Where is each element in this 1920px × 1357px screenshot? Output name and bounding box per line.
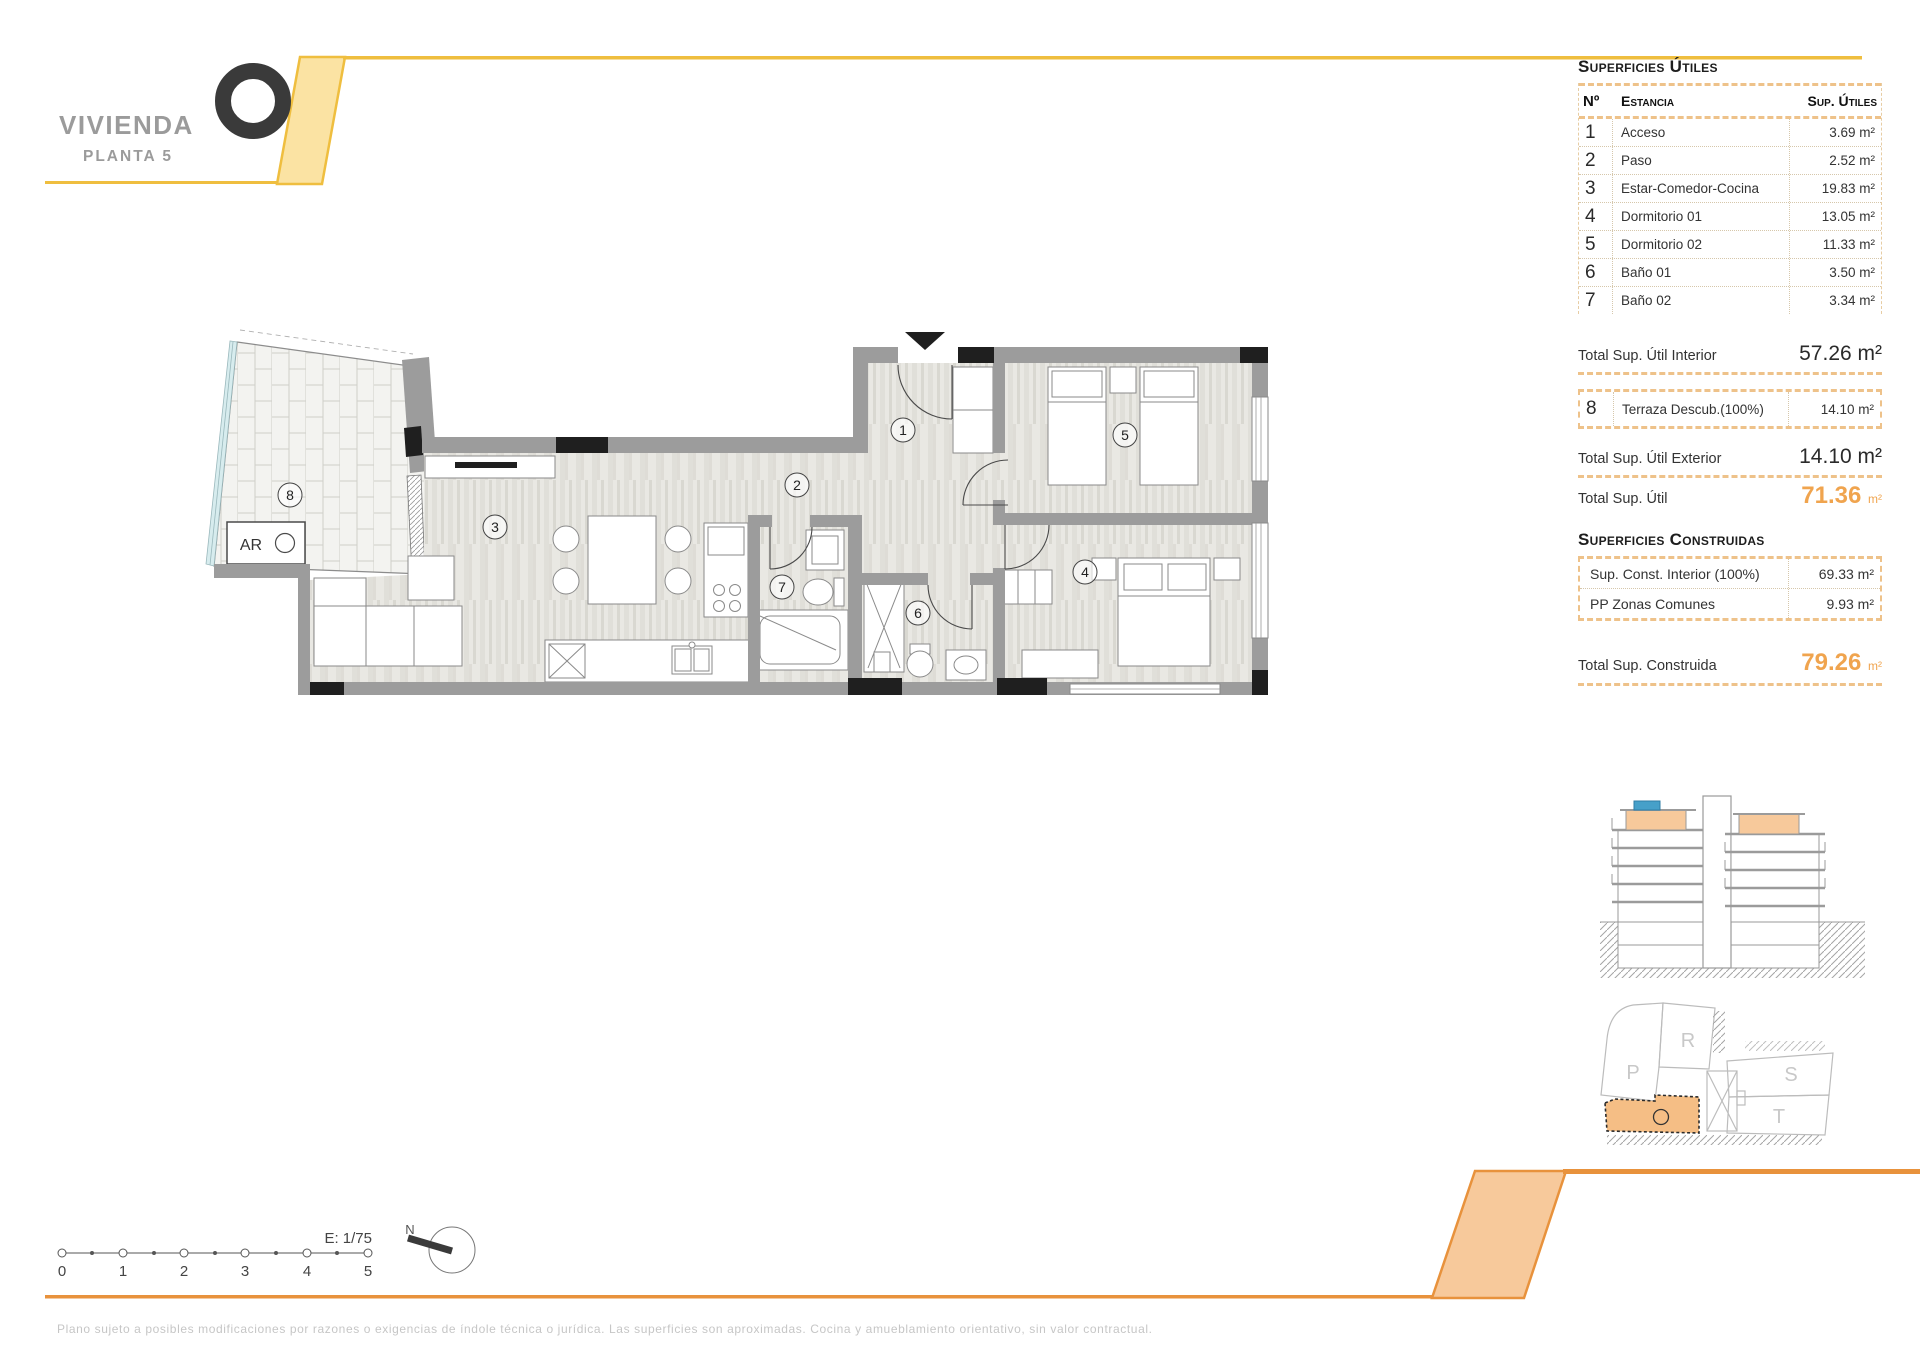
row-name: Sup. Const. Interior (100%) [1580,566,1788,582]
room-label-8: 8 [278,483,302,507]
total-exterior: Total Sup. Útil Exterior 14.10 m² [1578,443,1882,478]
bottom-band-parallelogram [1432,1171,1566,1298]
site-hatch-top [1745,1041,1825,1051]
highlighted-floor [1626,810,1686,830]
ar-unit-icon [276,534,295,553]
bottom-band-right-line [1563,1169,1920,1174]
north-label: N [405,1222,414,1237]
built-areas-title: Superficies Construidas [1578,530,1882,550]
footer-disclaimer: Plano sujeto a posibles modificaciones p… [57,1322,1153,1336]
kitchen-counter [545,640,750,682]
table-row: 8 Terraza Descub.(100%) 14.10 m² [1580,392,1880,426]
table-row: PP Zonas Comunes9.93 m² [1580,589,1880,618]
scale-tick: 0 [58,1263,66,1280]
row-value: 11.33 m² [1789,231,1881,258]
room-label-6: 6 [906,601,930,625]
plan-sheet: AR [0,0,1920,1357]
nightstand [1214,558,1240,580]
useful-areas-title: Superficies Útiles [1578,57,1882,77]
entry-closet [953,367,993,453]
total-interior-label: Total Sup. Útil Interior [1578,348,1717,364]
top-band-parallelogram [277,57,345,184]
table-header: Nº Estancia Sup. Útiles [1579,83,1881,119]
site-hatch-gap [1713,1011,1725,1053]
row-num: 3 [1579,175,1613,202]
row-name: Baño 01 [1613,265,1789,280]
scale-bar: E: 1/75 0 1 2 3 4 5 [58,1230,372,1280]
useful-areas-table: Nº Estancia Sup. Útiles 1Acceso3.69 m² 2… [1578,83,1882,314]
logo-title: VIVIENDA [59,110,194,141]
bottom-band-left-line [45,1295,1434,1299]
svg-text:6: 6 [914,605,922,621]
total-util-value: 71.36 m² [1801,482,1882,510]
total-util-label: Total Sup. Útil [1578,491,1667,507]
svg-text:1: 1 [899,422,907,438]
block-p [1601,1003,1663,1101]
row-name: PP Zonas Comunes [1580,596,1788,612]
row-value: 19.83 m² [1789,175,1881,202]
row-num: 5 [1579,231,1613,258]
svg-text:2: 2 [793,477,801,493]
site-key-plan: R P S T [1601,1003,1833,1145]
svg-text:5: 5 [1121,427,1129,443]
table-row: 3Estar-Comedor-Cocina19.83 m² [1579,175,1881,203]
window [1252,523,1268,638]
core-shaft [1703,796,1731,968]
row-name: Dormitorio 01 [1613,209,1789,224]
svg-text:7: 7 [778,579,786,595]
row-value: 3.34 m² [1789,287,1881,314]
total-util-unit: m² [1868,492,1882,506]
room-label-3: 3 [483,515,507,539]
building-section [1600,796,1865,978]
room-label-5: 5 [1113,423,1137,447]
row-value: 69.33 m² [1788,559,1880,588]
total-built-label: Total Sup. Construida [1578,658,1717,674]
scale-tick: 3 [241,1263,249,1280]
room-label-2: 2 [785,473,809,497]
scale-tick: 1 [119,1263,127,1280]
block-t-label: T [1773,1106,1785,1128]
table-row: 7Baño 023.34 m² [1579,287,1881,314]
table-row: Sup. Const. Interior (100%)69.33 m² [1580,559,1880,589]
coffee-table [408,556,454,600]
row-name: Estar-Comedor-Cocina [1613,181,1789,196]
row-name: Terraza Descub.(100%) [1614,402,1788,417]
total-built-unit: m² [1868,659,1882,673]
scale-label: E: 1/75 [324,1230,372,1247]
scale-tick: 5 [364,1263,372,1280]
room-label-4: 4 [1073,560,1097,584]
row-num: 8 [1580,392,1614,426]
total-built-number: 79.26 [1801,649,1861,676]
total-util: Total Sup. Útil 71.36 m² [1578,478,1882,516]
ar-unit-label: AR [240,537,262,554]
tv [455,462,517,468]
pool-icon [1634,801,1660,810]
svg-text:8: 8 [286,487,294,503]
built-areas-table: Sup. Const. Interior (100%)69.33 m² PP Z… [1578,556,1882,621]
row-name: Acceso [1613,125,1789,140]
svg-text:3: 3 [491,519,499,535]
toilet-icon [803,579,833,605]
kitchen-tall-units [704,523,748,617]
row-value: 2.52 m² [1789,147,1881,174]
row-num: 4 [1579,203,1613,230]
floor-plan: AR [206,330,1268,695]
col-value-header: Sup. Útiles [1789,93,1881,109]
window [1252,397,1268,481]
row-num: 2 [1579,147,1613,174]
entrance-arrow-icon [905,332,945,350]
table-row: 1Acceso3.69 m² [1579,119,1881,147]
nightstand [1110,367,1136,393]
terrace-column [404,426,423,457]
total-exterior-value: 14.10 m² [1799,445,1882,469]
terrace-bottom-wall [214,564,310,578]
row-num: 7 [1579,287,1613,314]
room-label-7: 7 [770,575,794,599]
scale-tick: 4 [303,1263,311,1280]
left-tower [1612,801,1708,922]
brand-ring-icon [223,71,283,131]
table-row: 2Paso2.52 m² [1579,147,1881,175]
terrace-row-box: 8 Terraza Descub.(100%) 14.10 m² [1578,389,1882,429]
row-value: 13.05 m² [1789,203,1881,230]
block-s-label: S [1784,1064,1797,1086]
wardrobe [1002,570,1052,604]
room-label-1: 1 [891,418,915,442]
row-num: 6 [1579,259,1613,286]
row-name: Dormitorio 02 [1613,237,1789,252]
block-p-label: P [1626,1062,1639,1084]
row-num: 1 [1579,119,1613,146]
table-row: 4Dormitorio 0113.05 m² [1579,203,1881,231]
terrace: AR [206,330,437,578]
row-name: Baño 02 [1613,293,1789,308]
total-interior-value: 57.26 m² [1799,342,1882,366]
total-util-number: 71.36 [1801,482,1861,509]
total-built-value: 79.26 m² [1801,649,1882,677]
logo-subtitle: PLANTA 5 [83,148,173,166]
total-exterior-label: Total Sup. Útil Exterior [1578,451,1721,467]
right-tower [1725,814,1825,922]
row-value: 14.10 m² [1788,392,1880,426]
row-value: 9.93 m² [1788,589,1880,618]
highlighted-floor [1739,814,1799,834]
desk [1022,650,1098,678]
row-value: 3.69 m² [1789,119,1881,146]
col-name-header: Estancia [1613,93,1789,109]
areas-panel: Superficies Útiles Nº Estancia Sup. Útil… [1578,57,1882,686]
site-ground-hatch [1607,1135,1822,1145]
row-name: Paso [1613,153,1789,168]
total-built: Total Sup. Construida 79.26 m² [1578,647,1882,686]
block-r-label: R [1681,1030,1695,1052]
north-compass-icon: N [405,1222,475,1273]
scale-tick: 2 [180,1263,188,1280]
table-row: 6Baño 013.50 m² [1579,259,1881,287]
table-row: 5Dormitorio 0211.33 m² [1579,231,1881,259]
row-value: 3.50 m² [1789,259,1881,286]
total-interior: Total Sup. Útil Interior 57.26 m² [1578,340,1882,375]
top-band-left-line [45,181,277,184]
svg-text:4: 4 [1081,564,1089,580]
col-num-header: Nº [1579,93,1613,110]
